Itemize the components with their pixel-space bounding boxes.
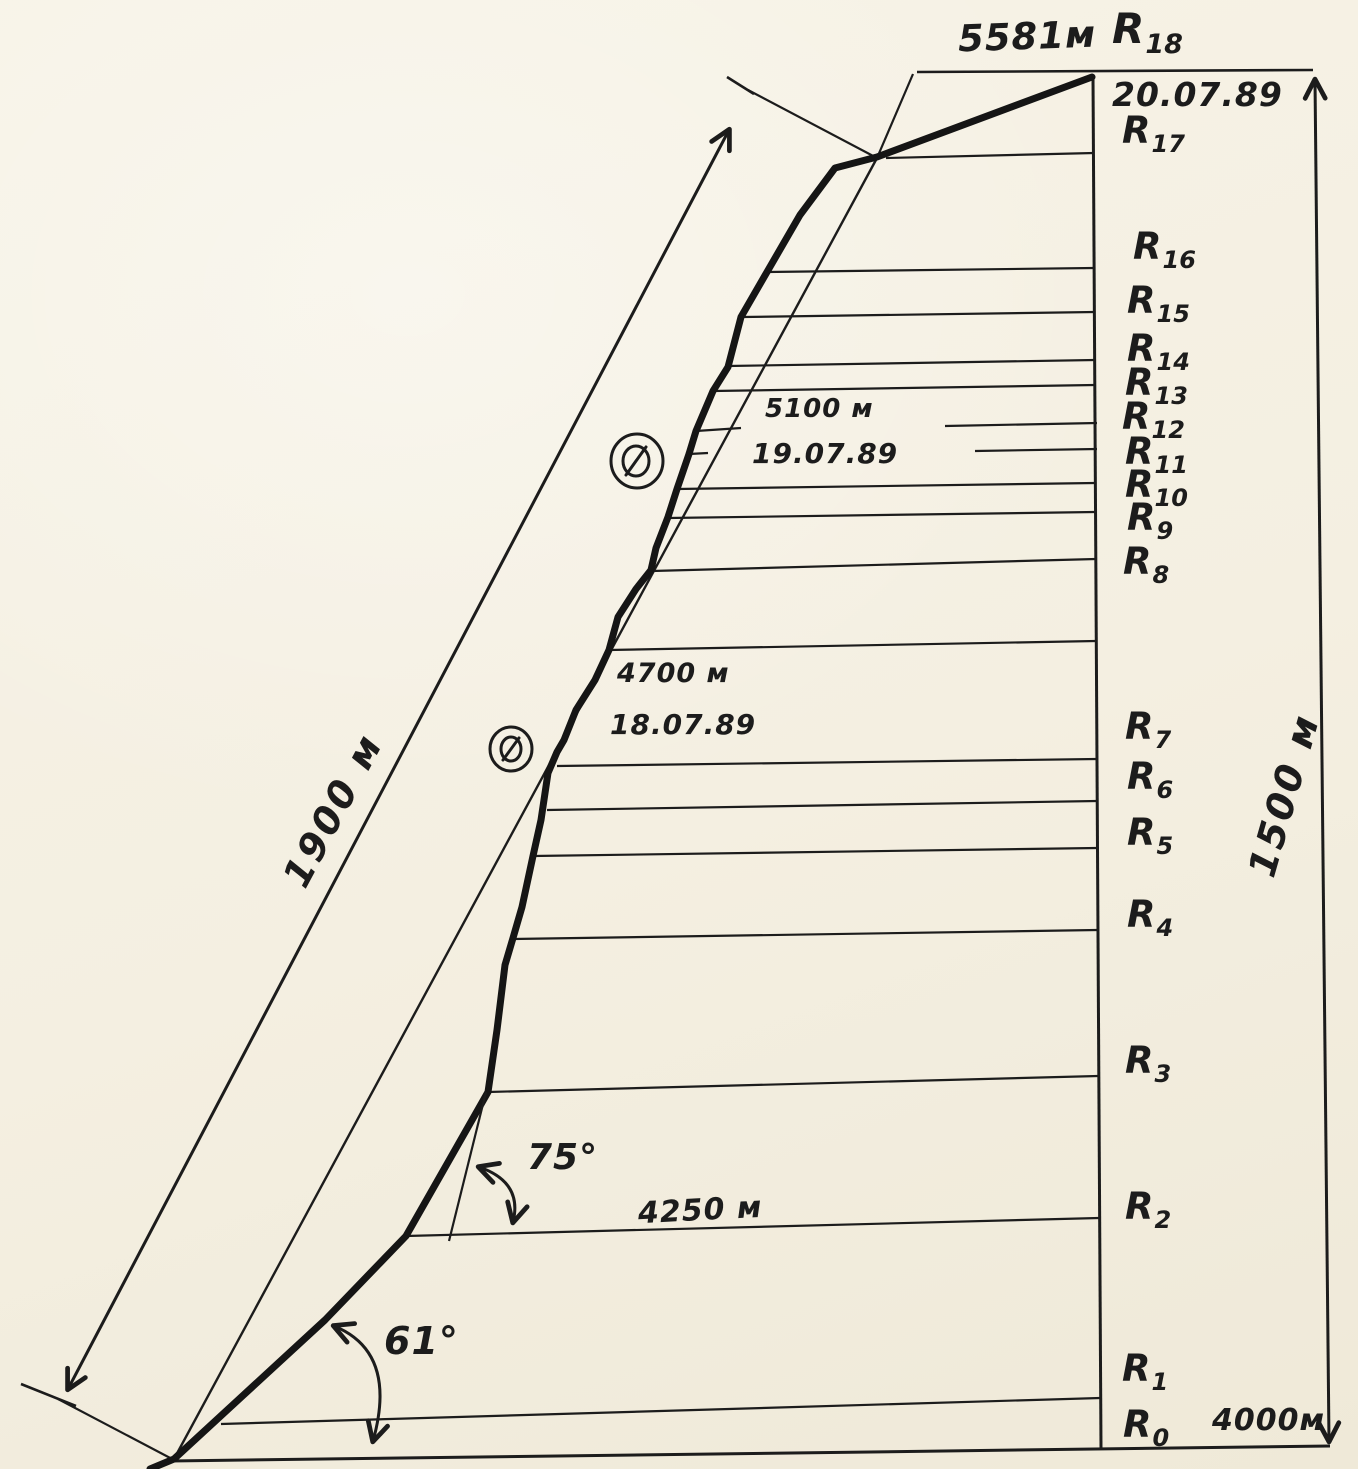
station-label-r7: R7 [1125, 708, 1171, 752]
station-line-r9 [668, 512, 1095, 518]
camp-line-4700 [609, 641, 1096, 650]
station-line-r15 [743, 312, 1095, 317]
camp-4700-altitude-label: 4700 м [617, 660, 730, 687]
station-label-r6: R6 [1127, 758, 1173, 802]
angle-61-label: 61° [384, 1322, 459, 1360]
station-line-r6 [547, 801, 1097, 810]
bivouac-circle-icon [490, 727, 532, 771]
station-line-r13 [713, 385, 1095, 391]
altitude-4250-label: 4250 м [637, 1193, 763, 1229]
station-line-r14 [728, 360, 1095, 366]
top-line [917, 70, 1313, 72]
summit-date-label: 20.07.89 [1112, 78, 1283, 111]
station-line-r12-left [696, 428, 741, 431]
camp-4700-date-label: 18.07.89 [610, 711, 756, 739]
station-label-r18: R18 [1112, 8, 1183, 58]
label-column-line [1093, 77, 1101, 1449]
station-line-r3 [488, 1076, 1098, 1092]
station-label-r1: R1 [1122, 1350, 1168, 1394]
station-line-r4 [513, 930, 1097, 939]
station-label-r8: R8 [1123, 543, 1169, 587]
bivouac-circle-icon [611, 434, 663, 488]
station-label-r15: R15 [1127, 282, 1190, 326]
station-line-r7 [557, 759, 1097, 766]
angle-61-arc [334, 1326, 380, 1441]
station-line-r5 [533, 848, 1097, 856]
station-line-r10 [677, 483, 1095, 489]
station-label-r16: R16 [1133, 228, 1196, 272]
angle-75-label: 75° [527, 1140, 598, 1176]
station-label-r9: R9 [1127, 499, 1173, 543]
camp-5100-date-label: 19.07.89 [752, 440, 898, 468]
route-line [150, 77, 1092, 1469]
station-label-r2: R2 [1125, 1188, 1171, 1232]
station-line-r8 [652, 559, 1096, 571]
camp-5100-altitude-label: 5100 м [765, 396, 874, 422]
station-label-r4: R4 [1127, 896, 1173, 940]
dimension-extension-top [748, 90, 877, 158]
station-label-r17: R17 [1122, 112, 1185, 156]
route-chord-line [174, 158, 877, 1459]
station-line-r1 [221, 1398, 1100, 1424]
altitude-4000-label: 4000м [1212, 1406, 1325, 1436]
station-label-r5: R5 [1127, 814, 1173, 858]
dimension-extension-bottom [58, 1399, 174, 1460]
length-dimension-line-1900 [68, 130, 729, 1389]
station-line-r12-right [945, 423, 1097, 426]
route-profile-sheet: 5581м R18 20.07.89 R17 R16 R15 R14 R13 R… [0, 0, 1358, 1469]
station-line-r11-right [975, 449, 1097, 451]
station-line-r17 [886, 153, 1094, 158]
station-label-r0: R0 [1123, 1406, 1169, 1450]
summit-altitude-label: 5581м [957, 16, 1096, 58]
angle-75-arc [479, 1167, 515, 1222]
station-label-r3: R3 [1125, 1042, 1171, 1086]
height-dimension-line-1500 [1315, 80, 1329, 1441]
